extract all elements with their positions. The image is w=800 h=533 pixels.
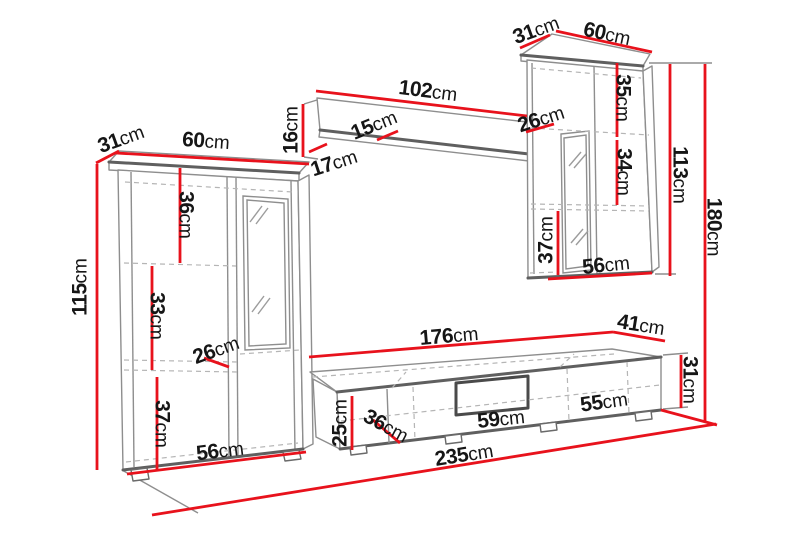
furniture-dimension-diagram: 31cm 60cm 115cm 36cm 33cm 26cm 37cm 56cm… (0, 0, 800, 533)
tv-foot-4 (635, 411, 652, 421)
dim-label-total-height: 180cm (704, 198, 725, 257)
dim-label-left-cabinet-bottom-section: 37cm (152, 400, 173, 448)
dim-label-left-cabinet-base-width: 56cm (195, 438, 245, 465)
dim-label-tv-stand-height: 31cm (680, 356, 701, 404)
dim-label-right-cabinet-base-width: 56cm (581, 252, 631, 278)
dim-label-left-cabinet-top-section: 36cm (176, 191, 197, 239)
dim-label-tv-stand-length: 176cm (419, 323, 479, 349)
dim-label-left-cabinet-middle-section: 33cm (147, 292, 168, 340)
ext-31-bottom (663, 407, 688, 409)
tv-foot-2 (445, 434, 462, 444)
dim-label-tv-stand-niche-width: 59cm (476, 406, 526, 432)
dim-label-wall-shelf-height: 16cm (281, 106, 302, 154)
dim-label-left-cabinet-width: 60cm (181, 129, 230, 153)
dim-label-right-cabinet-bottom-section: 37cm (536, 216, 557, 264)
dim-label-tv-stand-front-height: 25cm (330, 399, 351, 447)
dim-label-right-cabinet-top-section: 35cm (613, 74, 634, 122)
dim-line-shelf-17 (309, 144, 327, 152)
ext-31-top (663, 353, 688, 355)
wall-shelf-ext-top (304, 100, 317, 104)
left-cabinet (109, 151, 313, 481)
dim-label-left-cabinet-height: 115cm (70, 258, 91, 316)
dim-label-right-cabinet-height: 113cm (670, 146, 691, 204)
floor-right-edge (661, 410, 717, 425)
tv-foot-3 (540, 422, 557, 432)
dim-label-right-cabinet-middle-section: 34cm (614, 148, 635, 196)
